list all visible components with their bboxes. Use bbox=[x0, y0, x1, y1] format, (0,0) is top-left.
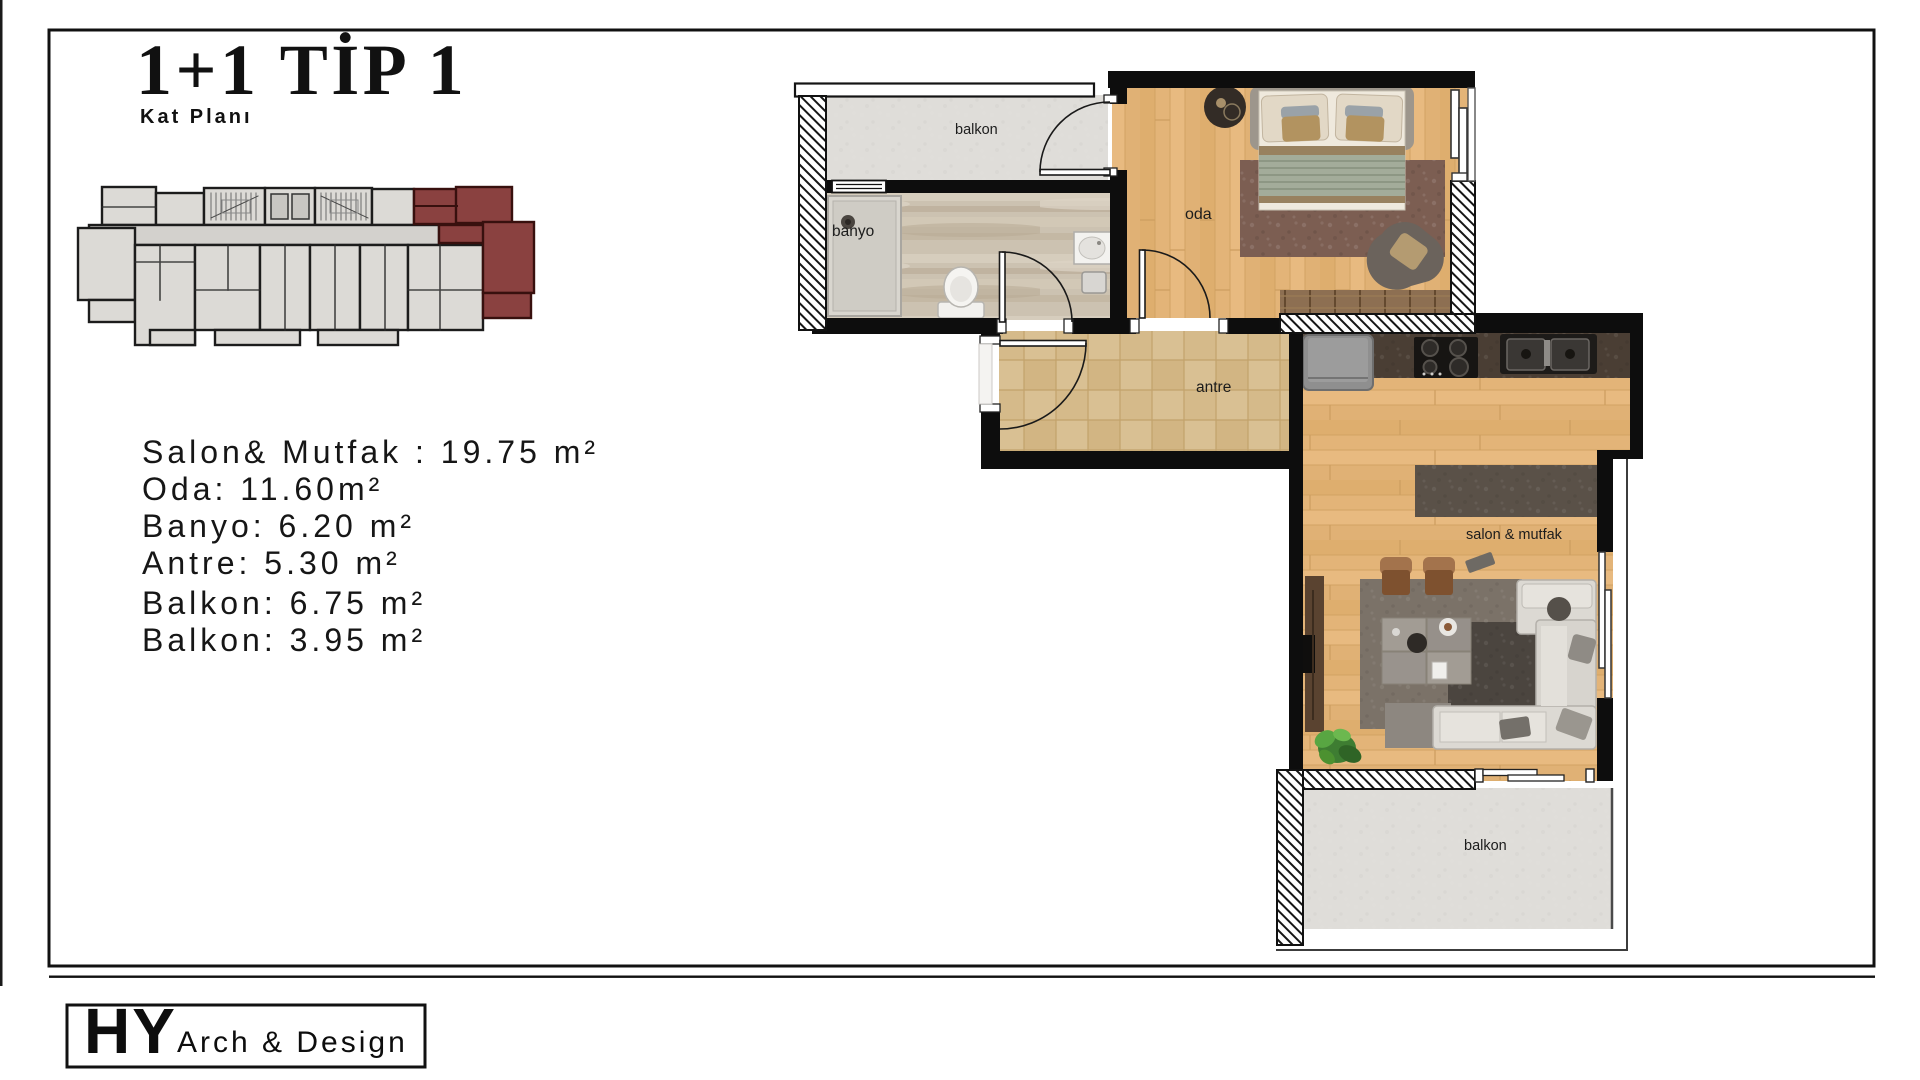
svg-text:oda: oda bbox=[1185, 206, 1212, 223]
svg-text:Balkon: 6.75 m²: Balkon: 6.75 m² bbox=[142, 585, 426, 621]
svg-text:1+1 TİP 1: 1+1 TİP 1 bbox=[136, 30, 467, 110]
svg-text:Banyo: 6.20 m²: Banyo: 6.20 m² bbox=[142, 508, 415, 544]
svg-text:Kat Planı: Kat Planı bbox=[140, 106, 253, 128]
svg-text:antre: antre bbox=[1196, 379, 1231, 396]
svg-text:balkon: balkon bbox=[955, 122, 998, 138]
svg-text:balkon: balkon bbox=[1464, 838, 1507, 854]
svg-text:Balkon: 3.95 m²: Balkon: 3.95 m² bbox=[142, 622, 426, 658]
svg-text:Antre: 5.30 m²: Antre: 5.30 m² bbox=[142, 545, 401, 581]
svg-text:Salon& Mutfak : 19.75 m²: Salon& Mutfak : 19.75 m² bbox=[142, 434, 599, 470]
svg-text:banyo: banyo bbox=[832, 223, 874, 240]
svg-text:Oda: 11.60m²: Oda: 11.60m² bbox=[142, 471, 383, 507]
svg-text:Arch & Design: Arch & Design bbox=[177, 1026, 408, 1059]
svg-text:HY: HY bbox=[84, 995, 177, 1067]
svg-text:salon & mutfak: salon & mutfak bbox=[1466, 527, 1563, 543]
